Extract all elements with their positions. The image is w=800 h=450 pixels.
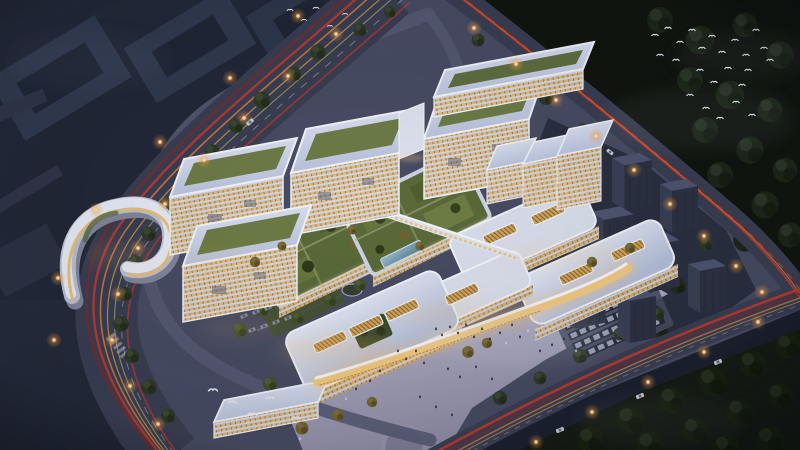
night-aerial-scene: [0, 0, 800, 450]
architectural-rendering: [0, 0, 800, 450]
vignette: [0, 0, 800, 450]
